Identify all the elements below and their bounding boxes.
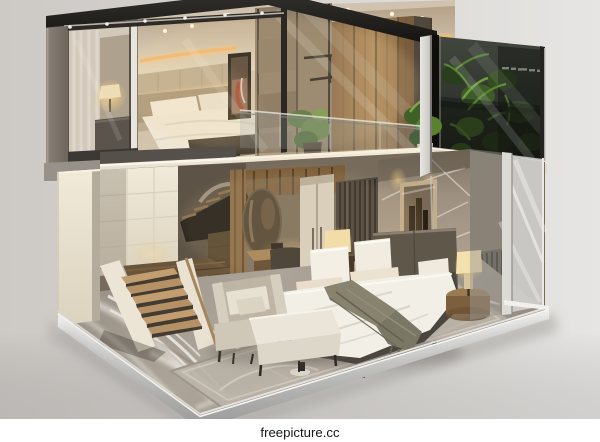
svg-text:freepicture.cc: freepicture.cc [260,425,340,440]
